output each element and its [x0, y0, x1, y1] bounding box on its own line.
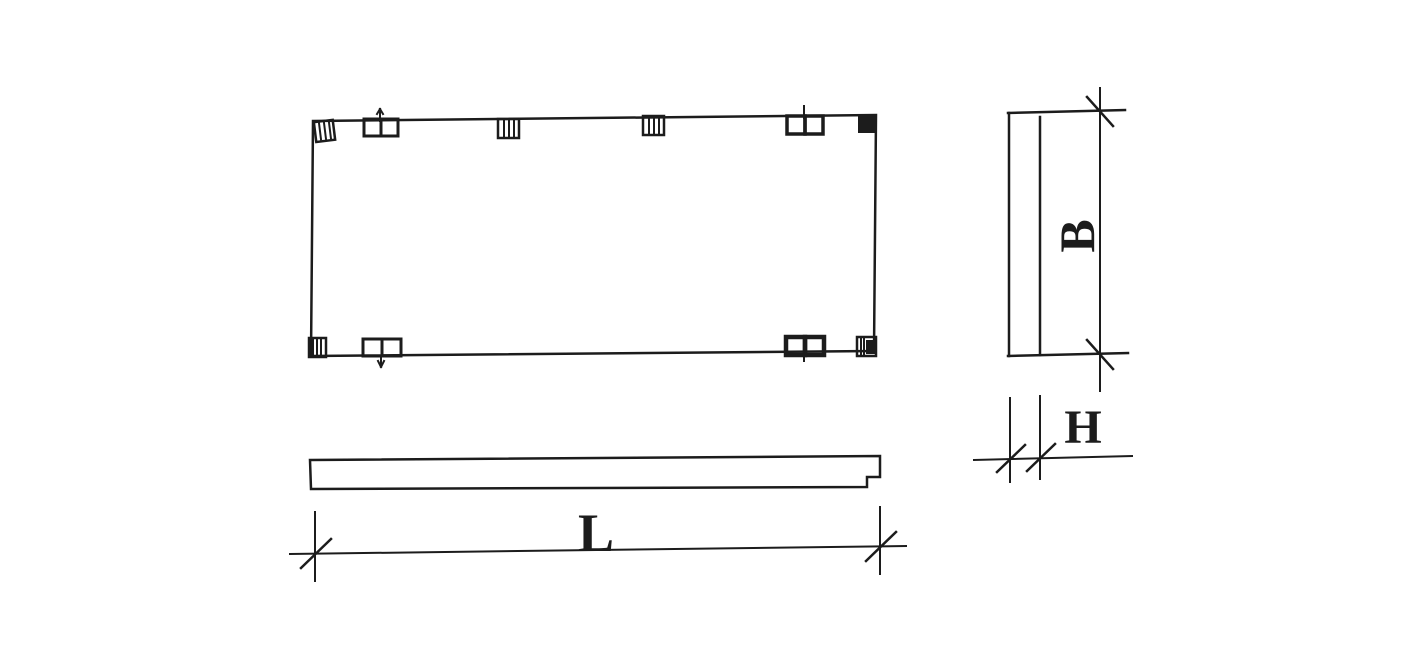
side-view — [1009, 113, 1040, 356]
loop-box — [382, 339, 401, 356]
hatch-line — [324, 123, 326, 139]
dimension-label-L: L — [578, 503, 614, 563]
loop-box — [381, 119, 398, 136]
hatch-line — [329, 122, 331, 138]
plan-view — [309, 106, 877, 367]
dimension-B: B — [1008, 88, 1128, 391]
elevation-outline — [310, 456, 880, 489]
elevation-view — [310, 456, 880, 489]
lifting-loop-bottom-left — [363, 339, 401, 367]
lifting-loop-top-left — [364, 109, 398, 136]
hatch-line — [319, 124, 321, 140]
extension-line-bottom — [1008, 353, 1128, 356]
plate-fill — [866, 340, 875, 354]
dimension-L: L — [290, 503, 906, 581]
corner-plate-top-right — [858, 114, 877, 133]
loop-box — [787, 116, 805, 134]
dimension-line — [974, 456, 1132, 460]
dimension-label-B: B — [1049, 219, 1105, 252]
lifting-loop-top-right — [787, 106, 823, 134]
embed-plate-top-center-right — [643, 116, 664, 135]
lifting-loop-bottom-right — [786, 337, 824, 361]
dimension-label-H: H — [1064, 401, 1101, 454]
corner-plate-top-left — [314, 120, 335, 142]
dimension-H: H — [974, 396, 1132, 482]
loop-box — [363, 339, 382, 356]
embed-plate-top-center-left — [498, 119, 519, 138]
plan-outline — [311, 115, 876, 356]
extension-line-top — [1008, 110, 1125, 113]
panel-dimension-drawing: L B H — [0, 0, 1416, 672]
loop-box — [805, 116, 823, 134]
